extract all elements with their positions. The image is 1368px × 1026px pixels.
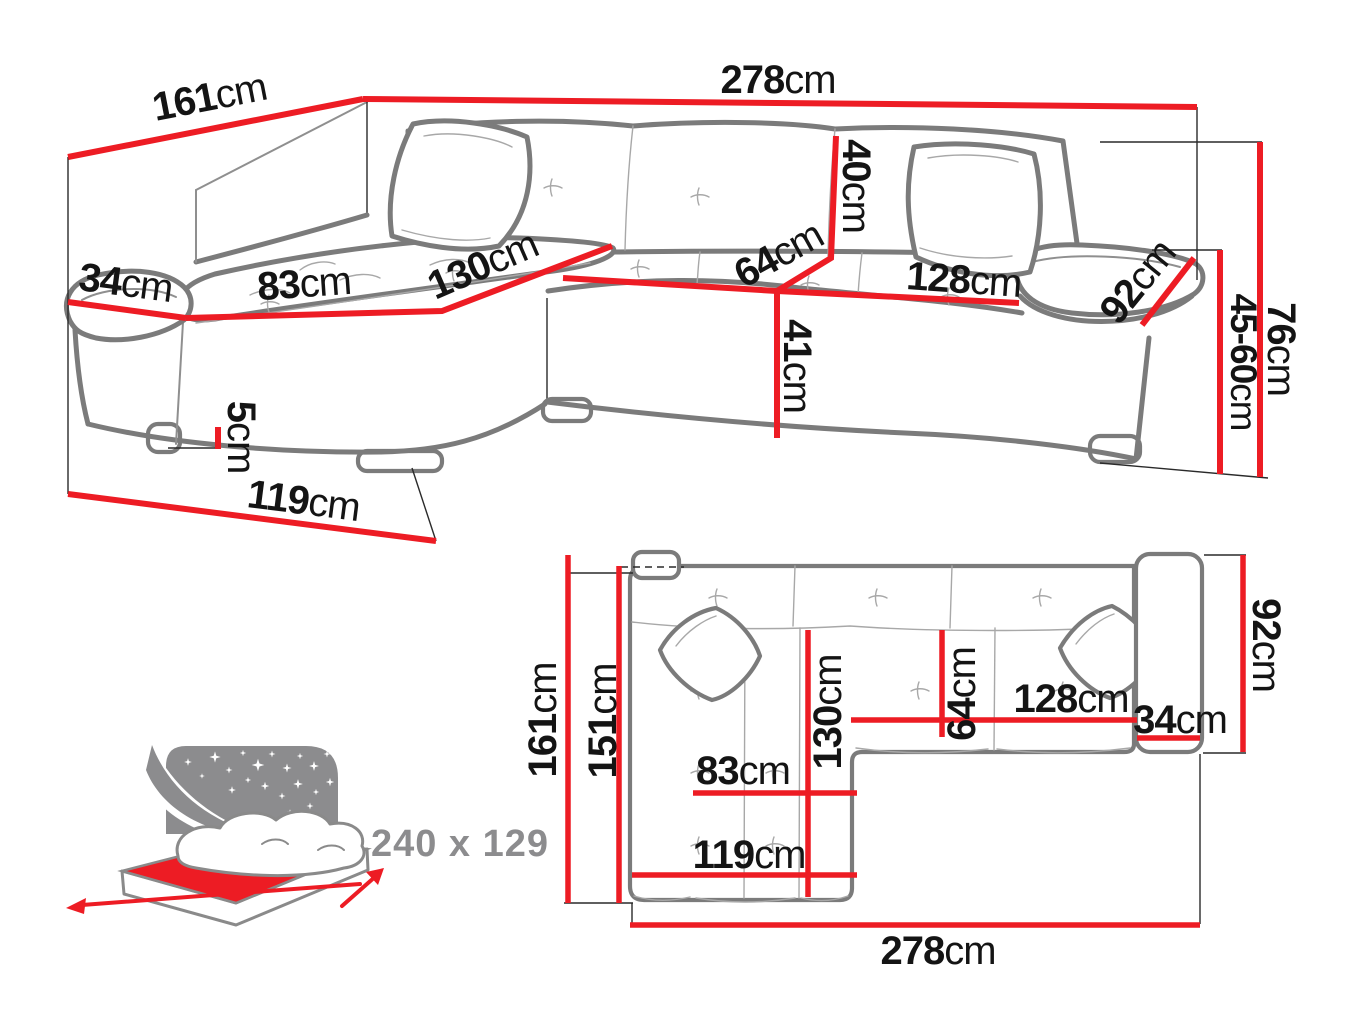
plan-dim-width-total: 278cm <box>880 929 995 973</box>
dim-height-range: 45-60cm <box>1223 294 1264 431</box>
bed-icon <box>66 811 384 925</box>
dim-leg-height: 5cm <box>219 401 263 474</box>
plan-dim-chaise-length: 130cm <box>806 654 850 769</box>
dim-total-width: 278cm <box>720 58 835 102</box>
plan-dim-chaise-width: 83cm <box>696 749 790 793</box>
plan-view: 161cm 151cm 130cm 64cm 128cm 34cm 92cm 8… <box>521 552 1288 973</box>
diagram-canvas: 278cm 161cm 34cm 83cm 130cm 64cm 40cm 12… <box>0 0 1368 1026</box>
dim-seat-height: 41cm <box>775 319 819 413</box>
plan-dim-seat-width: 128cm <box>1013 677 1128 721</box>
bed-size-label: 240 x 129 <box>371 823 549 865</box>
plan-dim-seat-depth: 64cm <box>940 647 984 741</box>
perspective-view: 278cm 161cm 34cm 83cm 130cm 64cm 40cm 12… <box>66 58 1303 541</box>
sleeping-function-icon: 240 x 129 <box>66 740 549 925</box>
plan-dim-side-depth: 92cm <box>1244 598 1288 692</box>
dim-chaise-seat-width: 83cm <box>256 259 353 309</box>
dim-total-height: 76cm <box>1259 302 1303 396</box>
plan-dim-depth-total: 161cm <box>521 662 565 777</box>
plan-dim-chaise-outer: 119cm <box>693 833 806 877</box>
sofa-dimension-diagram: 278cm 161cm 34cm 83cm 130cm 64cm 40cm 12… <box>0 0 1368 1026</box>
plan-dim-armrest-width: 34cm <box>1133 698 1227 742</box>
dim-backrest-height: 40cm <box>834 139 878 233</box>
plan-dim-depth-inner: 151cm <box>581 663 625 778</box>
dim-seat-width: 128cm <box>905 254 1023 306</box>
